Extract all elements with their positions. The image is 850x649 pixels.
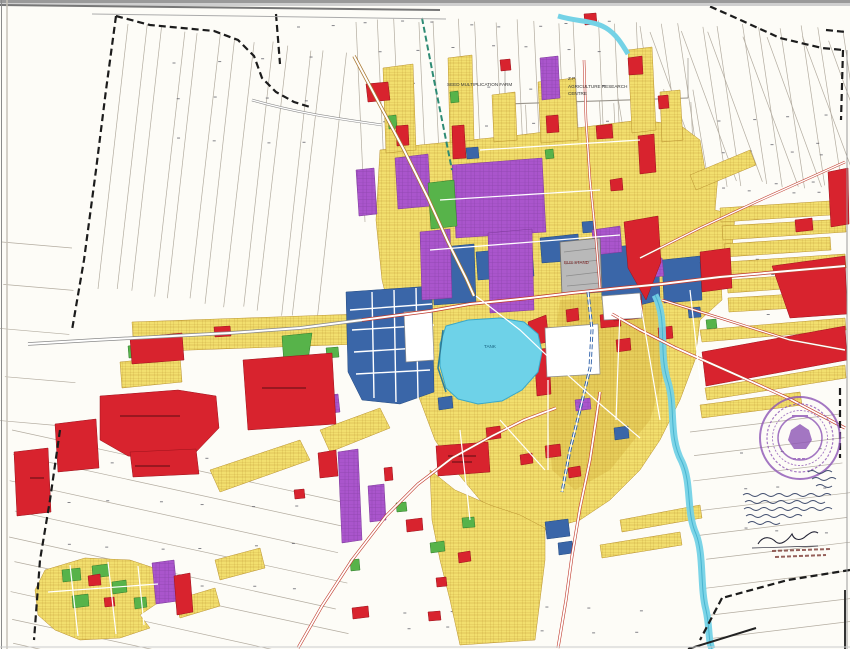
label-agri-3: CENTRE — [568, 91, 587, 96]
development-plan-map: SEED MULTIPLICATION FARM Z.P. AGRICULTUR… — [0, 0, 850, 649]
label-agri-2: AGRICULTURE RESEARCH — [568, 84, 627, 89]
label-agri-1: Z.P. — [568, 76, 576, 81]
label-bus-stand: BUS STAND — [564, 260, 589, 265]
label-tank: TANK — [484, 344, 497, 349]
scanned-map-page: SEED MULTIPLICATION FARM Z.P. AGRICULTUR… — [0, 0, 850, 649]
label-seed-farm: SEED MULTIPLICATION FARM — [447, 82, 512, 87]
